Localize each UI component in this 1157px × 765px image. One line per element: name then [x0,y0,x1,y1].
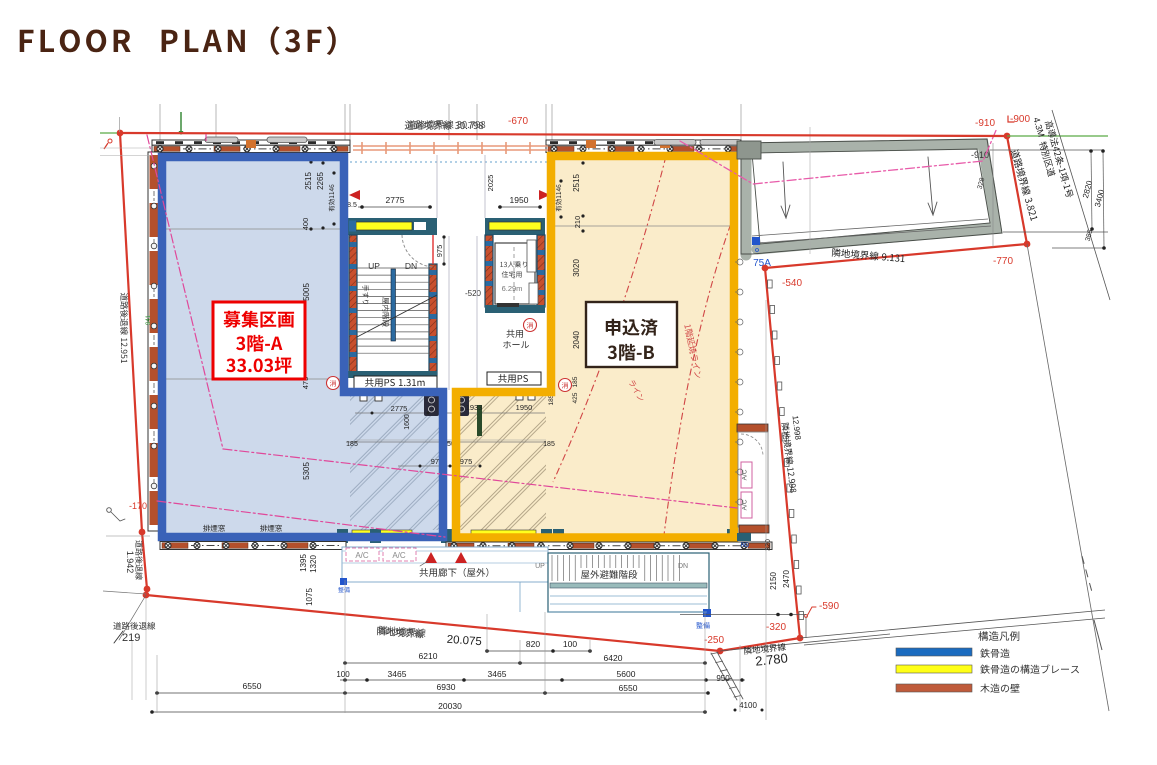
svg-text:5005: 5005 [302,283,311,301]
svg-text:6930: 6930 [437,682,456,692]
svg-text:3465: 3465 [388,669,407,679]
svg-text:975: 975 [460,457,473,466]
svg-text:UP: UP [535,563,545,570]
svg-text:-770: -770 [993,256,1013,267]
svg-text:975: 975 [435,245,444,258]
svg-text:2515: 2515 [572,174,581,192]
svg-text:20.075: 20.075 [446,634,482,648]
svg-text:820: 820 [526,639,540,649]
svg-text:1395: 1395 [299,554,308,572]
svg-text:185: 185 [346,441,358,448]
svg-text:1950: 1950 [510,195,529,205]
svg-text:2515: 2515 [304,172,313,190]
svg-text:400: 400 [301,218,310,231]
svg-text:1320: 1320 [309,555,318,573]
svg-text:-910: -910 [975,118,995,129]
svg-text:1075: 1075 [305,588,314,606]
svg-text:6420: 6420 [604,653,623,663]
svg-text:5600: 5600 [617,669,636,679]
svg-text:100: 100 [563,639,577,649]
svg-text:DN: DN [405,261,417,271]
svg-text:941: 941 [146,314,152,325]
svg-text:185: 185 [572,376,579,387]
svg-text:-320: -320 [766,622,786,633]
svg-text:-900: -900 [1010,114,1030,125]
svg-text:6550: 6550 [619,683,638,693]
svg-text:2150: 2150 [769,572,778,590]
svg-text:4100: 4100 [739,701,757,710]
svg-text:UP: UP [368,261,380,271]
svg-text:5305: 5305 [302,462,311,480]
svg-text:DN: DN [678,563,688,570]
svg-text:20030: 20030 [438,701,462,711]
svg-text:6550: 6550 [243,681,262,691]
svg-text:-910: -910 [971,150,989,160]
svg-text:2025: 2025 [486,175,495,192]
svg-text:RD: RD [741,543,750,549]
svg-text:425: 425 [572,392,579,403]
svg-text:2775: 2775 [391,404,408,413]
svg-text:-670: -670 [508,116,528,127]
svg-text:2265: 2265 [316,172,325,190]
svg-text:2470: 2470 [782,570,791,588]
svg-text:1933: 1933 [466,403,483,412]
svg-text:950: 950 [716,674,730,683]
svg-text:-520: -520 [465,289,482,298]
svg-text:-250: -250 [704,635,724,646]
svg-text:3020: 3020 [572,259,581,277]
svg-text:8.5: 8.5 [347,202,357,209]
svg-text:-590: -590 [819,601,839,612]
svg-text:-540: -540 [782,278,802,289]
svg-text:210: 210 [573,216,582,229]
svg-text:A/C: A/C [392,551,406,560]
svg-text:-170: -170 [129,501,147,511]
svg-text:1600: 1600 [404,414,411,430]
svg-text:100: 100 [336,670,350,679]
svg-text:185: 185 [543,441,555,448]
svg-text:219: 219 [122,632,140,644]
svg-text:3465: 3465 [488,669,507,679]
svg-text:1950: 1950 [516,403,533,412]
svg-text:6.29m: 6.29m [502,284,523,293]
svg-text:A/C: A/C [355,551,369,560]
svg-text:2775: 2775 [386,195,405,205]
svg-text:1.942: 1.942 [125,551,135,574]
svg-text:6210: 6210 [419,651,438,661]
svg-text:2040: 2040 [572,331,581,349]
